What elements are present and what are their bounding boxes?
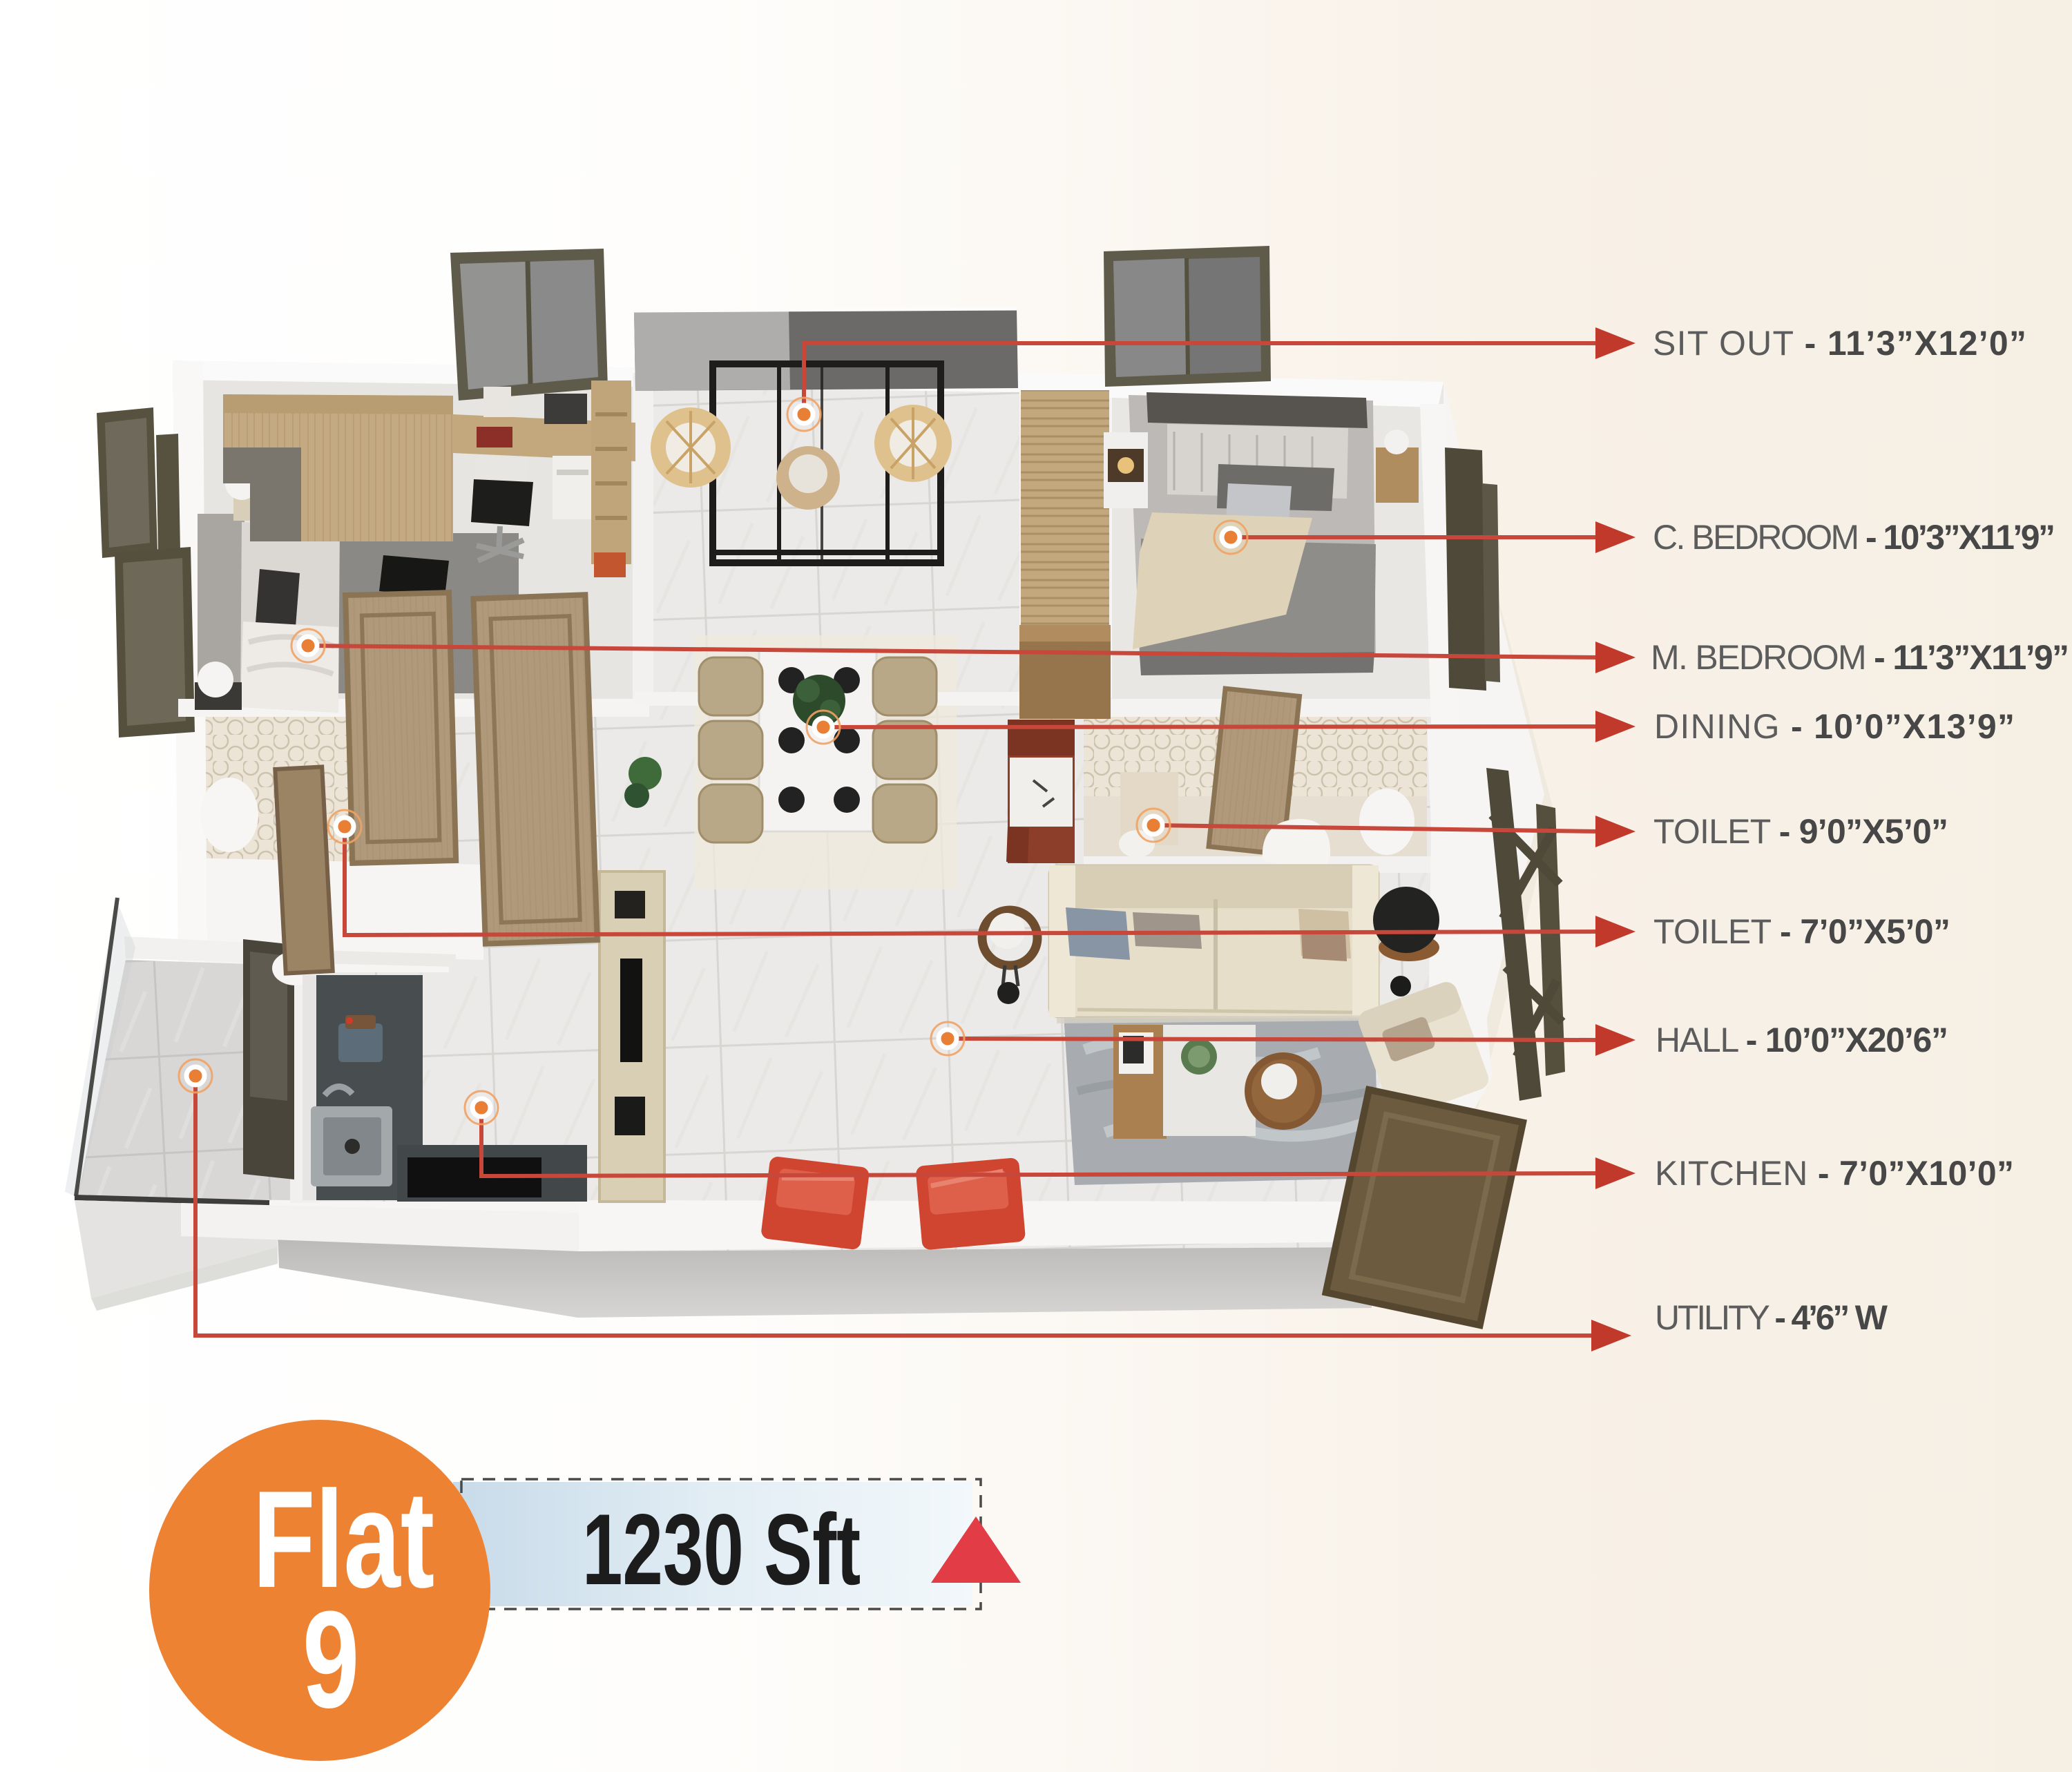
svg-text:SIT OUT - 11’3”X12’0”: SIT OUT - 11’3”X12’0” (1653, 324, 2026, 363)
svg-text:M. BEDROOM - 11’3”X11’9”: M. BEDROOM - 11’3”X11’9” (1651, 638, 2069, 677)
svg-text:DINING - 10’0”X13’9”: DINING - 10’0”X13’9” (1654, 707, 2015, 746)
svg-text:9: 9 (303, 1583, 359, 1737)
svg-text:UTILITY - 4’6” W: UTILITY - 4’6” W (1655, 1298, 1888, 1337)
svg-text:1230 Sft: 1230 Sft (582, 1493, 861, 1606)
svg-text:HALL - 10’0”X20’6”: HALL - 10’0”X20’6” (1656, 1021, 1948, 1059)
svg-text:TOILET - 7’0”X5’0”: TOILET - 7’0”X5’0” (1653, 912, 1950, 951)
svg-text:C. BEDROOM - 10’3”X11’9”: C. BEDROOM - 10’3”X11’9” (1653, 518, 2055, 557)
svg-text:KITCHEN - 7’0”X10’0”: KITCHEN - 7’0”X10’0” (1655, 1154, 2014, 1193)
svg-text:TOILET - 9’0”X5’0”: TOILET - 9’0”X5’0” (1653, 812, 1948, 851)
